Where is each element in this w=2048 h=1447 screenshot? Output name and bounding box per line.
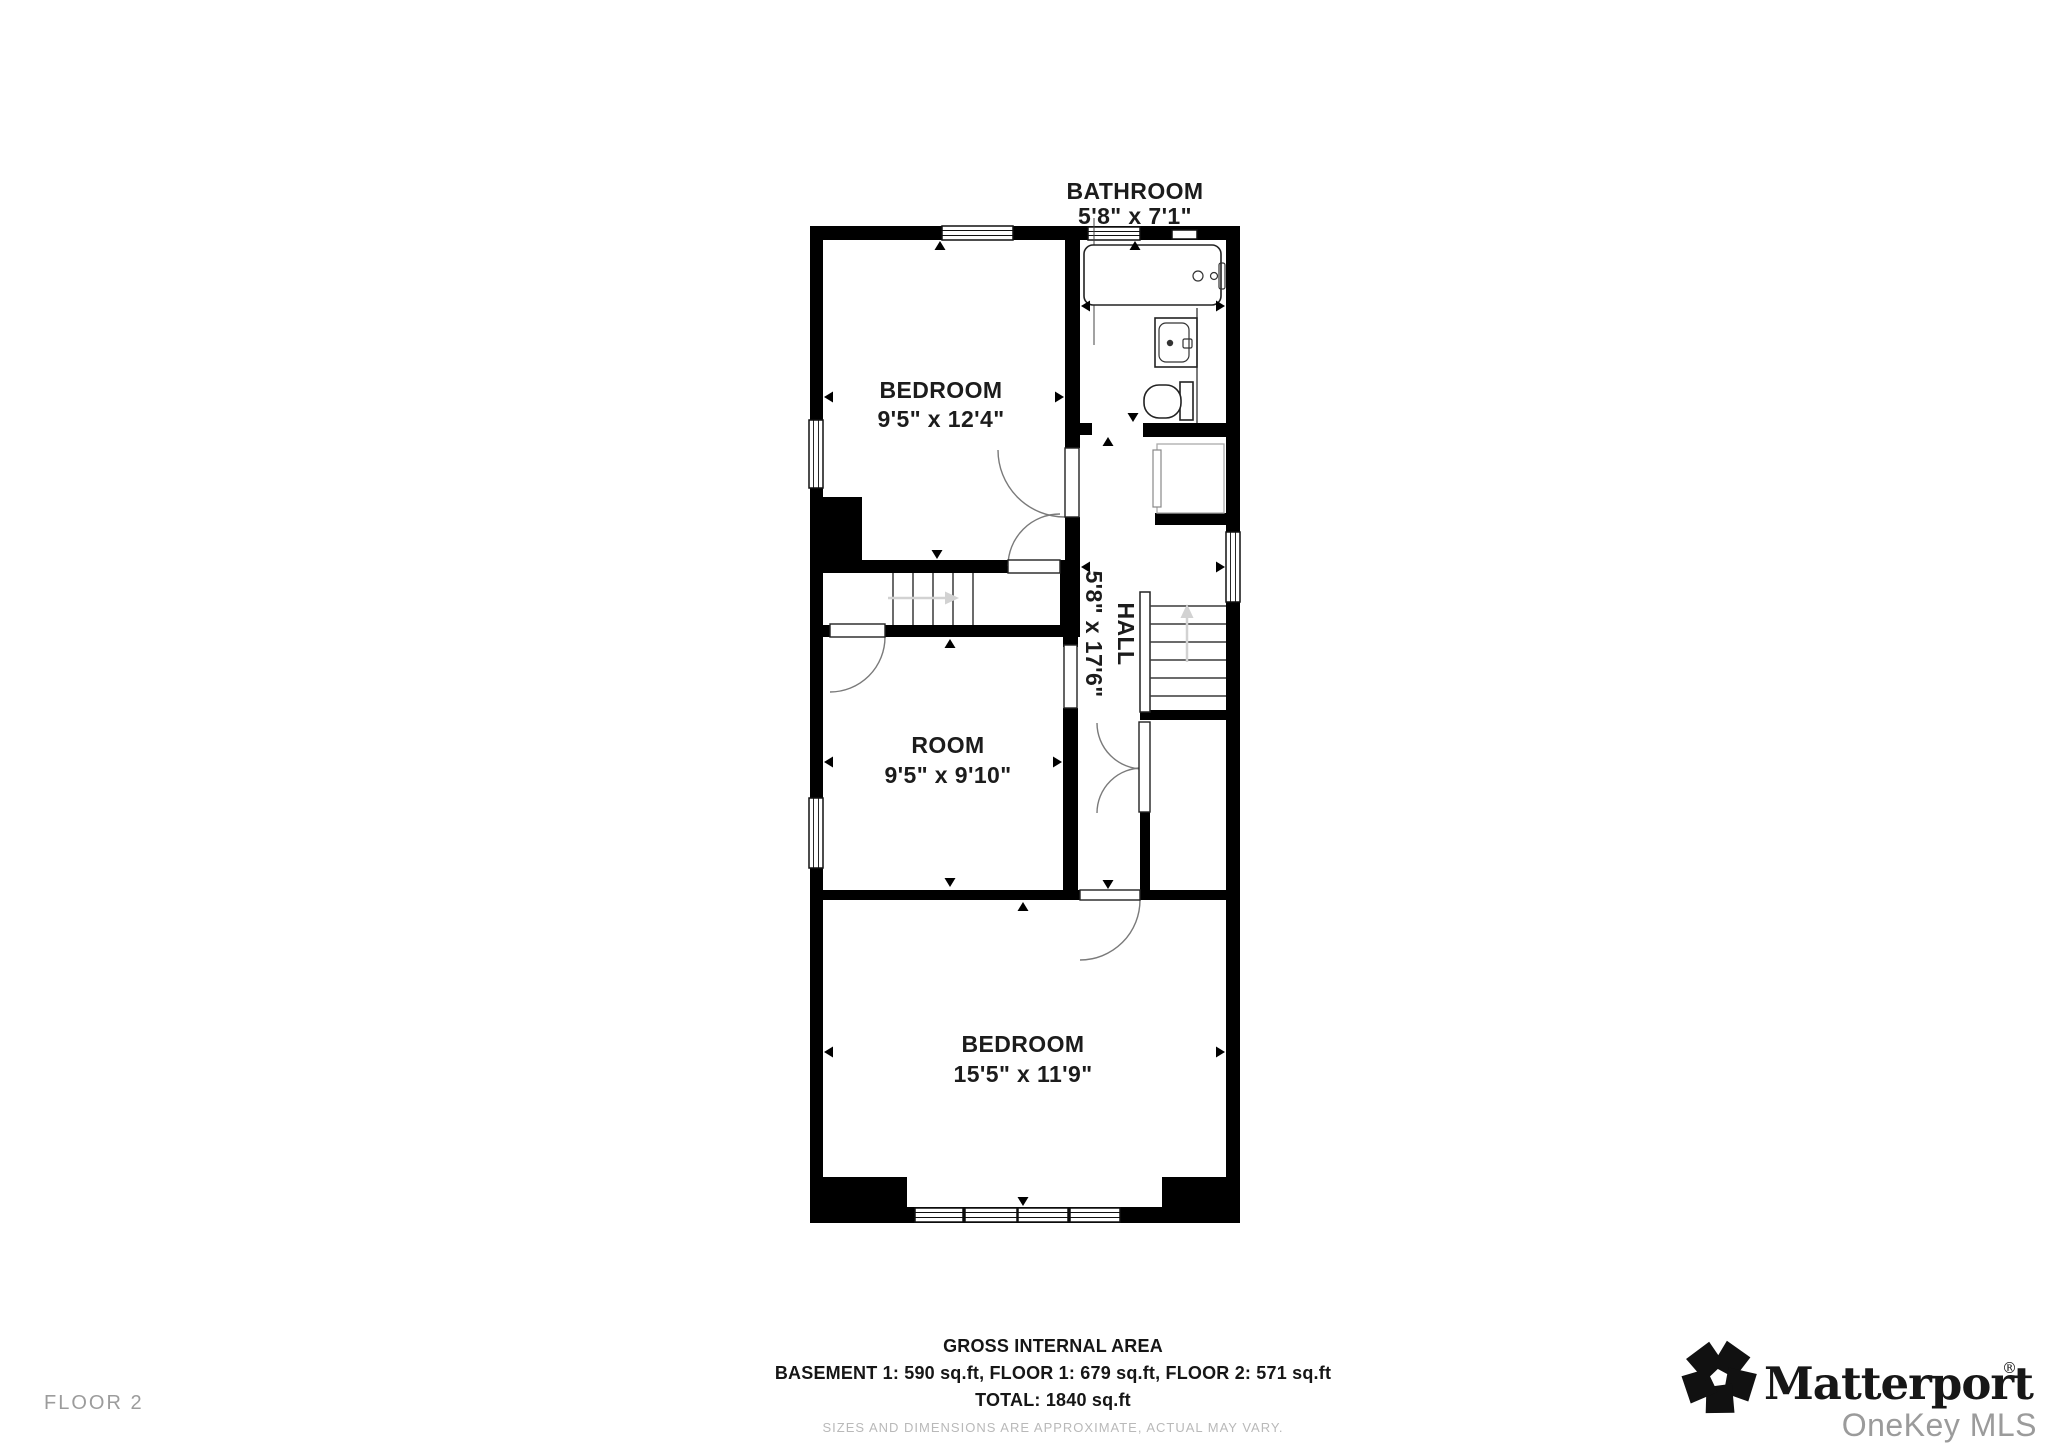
- bedroom1-label: BEDROOM: [880, 377, 1003, 403]
- window-bedroom2-bottom-4: [1070, 1208, 1120, 1222]
- closet-cabinet: [1153, 444, 1224, 513]
- doors: [830, 448, 1150, 960]
- door-bedroom1-stairs: [1008, 514, 1060, 573]
- matterport-wordmark: Matterport: [1764, 1357, 2034, 1410]
- stair-railing: [1140, 592, 1150, 712]
- bedroom1-dims: 9'5" x 12'4": [877, 406, 1004, 432]
- window-bedroom2-bottom-3: [1018, 1208, 1068, 1222]
- bedroom2-label: BEDROOM: [962, 1031, 1085, 1057]
- footer-area-summary: GROSS INTERNAL AREA BASEMENT 1: 590 sq.f…: [775, 1336, 1331, 1435]
- floor-label: FLOOR 2: [44, 1392, 144, 1414]
- door-bedroom2: [1080, 890, 1140, 960]
- hall-dims: 5'8" x 17'6": [1081, 570, 1107, 697]
- room-dims: 9'5" x 9'10": [884, 762, 1011, 788]
- chimney-block: [820, 497, 862, 561]
- hall-label: HALL: [1113, 603, 1139, 666]
- bedroom2-dims: 15'5" x 11'9": [954, 1061, 1093, 1087]
- matterport-branding: Matterport ® OneKey MLS: [1674, 1336, 2037, 1443]
- window-stairs-right: [1226, 532, 1240, 602]
- window-bedroom1-top: [942, 226, 1013, 240]
- sink-icon: [1155, 318, 1197, 367]
- floorplan-canvas: BATHROOM 5'8" x 7'1" BEDROOM 9'5" x 12'4…: [0, 0, 2048, 1447]
- footer-areas: BASEMENT 1: 590 sq.ft, FLOOR 1: 679 sq.f…: [775, 1363, 1331, 1383]
- door-room-hall: [1064, 645, 1077, 708]
- footer-total: TOTAL: 1840 sq.ft: [975, 1390, 1131, 1410]
- onekey-mls-label: OneKey MLS: [1842, 1407, 2037, 1443]
- footer-disclaimer: SIZES AND DIMENSIONS ARE APPROXIMATE, AC…: [823, 1420, 1284, 1435]
- bathroom-fixtures: [1084, 218, 1225, 513]
- window-bedroom2-bottom-1: [915, 1208, 963, 1222]
- bathroom-label: BATHROOM: [1067, 178, 1204, 204]
- stairs-lower-flight: [1140, 592, 1226, 712]
- window-small-notch: [1172, 230, 1197, 239]
- window-bedroom2-bottom-2: [965, 1208, 1017, 1222]
- door-hall-closet-double: [1097, 722, 1150, 813]
- stairs-upper-flight: [888, 573, 973, 625]
- door-bedroom1: [998, 448, 1079, 517]
- floorplan-page: BATHROOM 5'8" x 7'1" BEDROOM 9'5" x 12'4…: [0, 0, 2048, 1447]
- window-room-left: [809, 798, 823, 868]
- room-label: ROOM: [911, 732, 984, 758]
- door-room: [830, 624, 885, 692]
- hall-label-group: HALL 5'8" x 17'6": [1081, 570, 1139, 697]
- bathtub-icon: [1084, 245, 1225, 305]
- registered-mark: ®: [2002, 1359, 2017, 1377]
- footer-title: GROSS INTERNAL AREA: [943, 1336, 1163, 1356]
- toilet-icon: [1144, 382, 1193, 420]
- bathroom-dims: 5'8" x 7'1": [1078, 203, 1192, 229]
- window-bedroom1-left: [809, 420, 823, 488]
- matterport-logo-icon: [1674, 1336, 1759, 1422]
